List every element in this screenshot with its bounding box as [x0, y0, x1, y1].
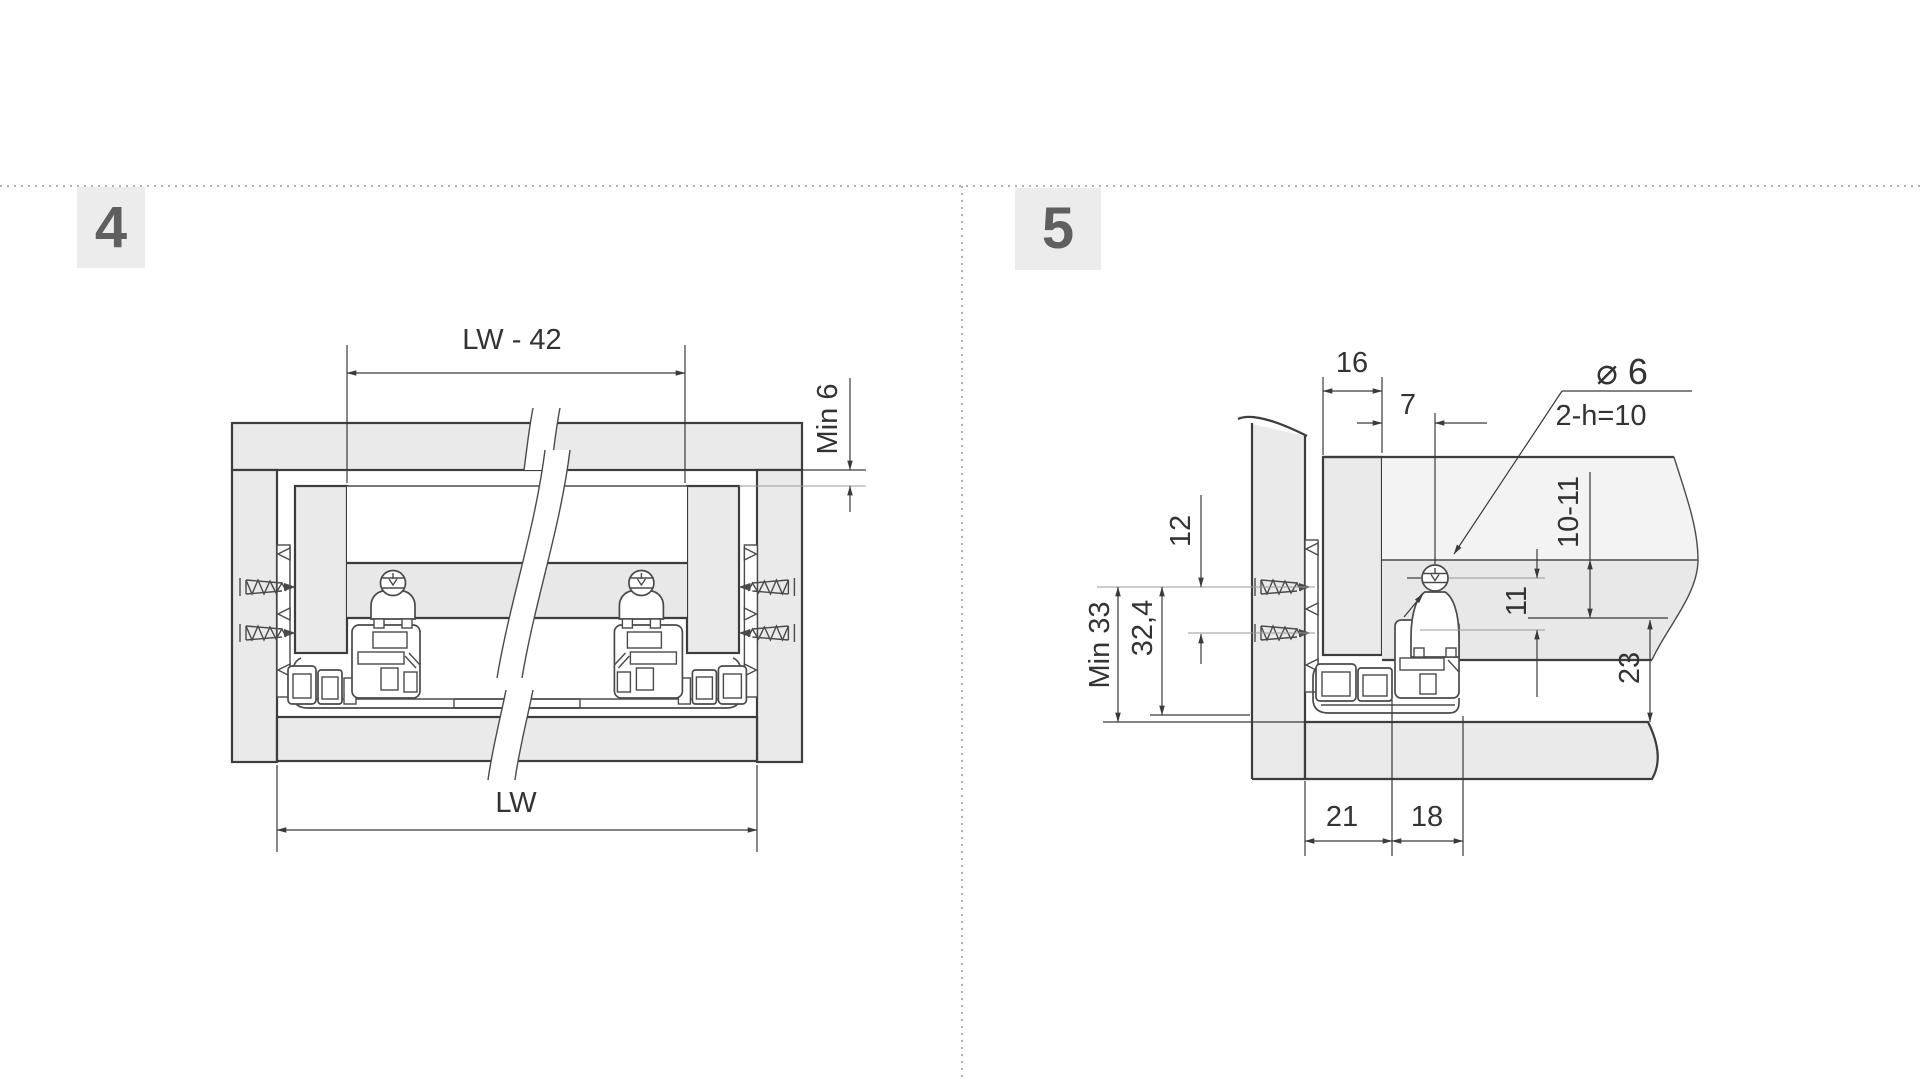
dim-label-16: 16 [1336, 347, 1368, 379]
drawer-bottom-upper [1382, 457, 1698, 560]
drawer-wall [1323, 457, 1382, 655]
drawer-interior [347, 486, 687, 563]
step4-drawing: LW - 42 Min 6 LW [232, 324, 866, 852]
bottom-panel [1305, 722, 1658, 779]
cabinet-left-side [232, 470, 277, 762]
dim-label-lw-42: LW - 42 [462, 324, 561, 356]
dim-12: 12 [1165, 495, 1201, 664]
dim-label-32-4: 32,4 [1127, 600, 1159, 656]
dim-16: 16 [1323, 347, 1382, 455]
dim-label-hole-note: 2-h=10 [1555, 400, 1646, 432]
dim-label-10-11: 10-11 [1553, 476, 1585, 548]
dim-label-12: 12 [1165, 515, 1197, 547]
dim-32-4: 32,4 [1127, 587, 1162, 715]
cabinet-side-panel [1252, 424, 1305, 779]
dim-lw: LW [277, 765, 757, 852]
drawer-left-wall [295, 486, 347, 653]
dim-label-min33: Min 33 [1084, 601, 1116, 688]
dim-min-33: Min 33 [1084, 587, 1118, 722]
dim-label-11: 11 [1501, 586, 1533, 616]
cabinet-top-panel [232, 423, 802, 470]
dim-label-21: 21 [1326, 801, 1358, 833]
dim-label-min6: Min 6 [812, 384, 844, 455]
step5-drawing: 16 7 ⌀ 6 2-h=10 12 [1084, 347, 1698, 856]
hook-housing [1411, 592, 1459, 657]
dim-label-lw: LW [495, 787, 537, 819]
dim-7: 7 [1357, 389, 1487, 423]
dim-label-23: 23 [1614, 652, 1646, 684]
instruction-sheet: 4 5 [0, 0, 1924, 1082]
technical-drawing: LW - 42 Min 6 LW [0, 0, 1924, 1082]
dim-label-18: 18 [1411, 801, 1443, 833]
drawer-right-wall [687, 486, 739, 653]
cabinet-right-side [757, 470, 802, 762]
dim-label-diameter: ⌀ 6 [1596, 351, 1648, 392]
dim-label-7: 7 [1400, 389, 1416, 421]
